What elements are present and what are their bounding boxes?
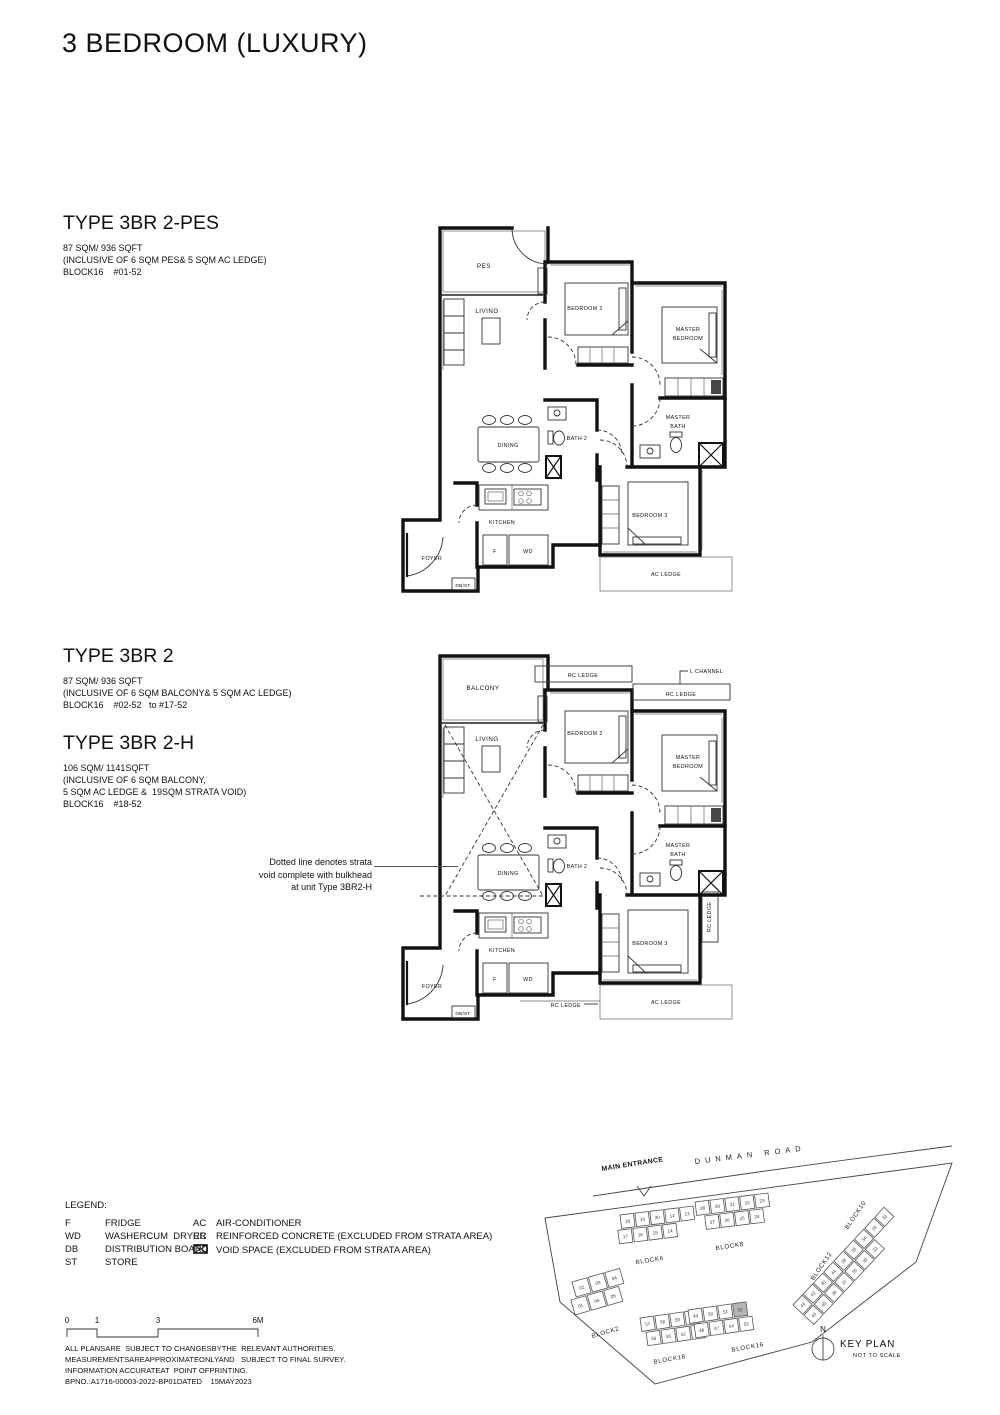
room-label-foyer: FOYER [422, 556, 442, 562]
bed-master [662, 307, 717, 363]
disclaimer-line: BPNO.:A1716-00003-2022-BP01DATED 15MAY20… [65, 1376, 345, 1387]
label-rc-ledge-right: RC LEDGE [707, 902, 713, 932]
block16-label: BLOCK16 [731, 1341, 764, 1354]
pes-inner-line [443, 231, 545, 292]
block10-label: BLOCK10 [844, 1200, 868, 1231]
legend-row-wd: WDWASHERCUM DRYER [65, 1231, 206, 1242]
type-name: TYPE 3BR 2 [63, 645, 393, 668]
label-rc-ledge-top2: RC LEDGE [666, 692, 696, 698]
legend-row-db: DBDISTRIBUTION BOARD [65, 1244, 208, 1255]
scale-label-3: 3 [156, 1316, 161, 1325]
scale-bar: 0 1 3 6M [55, 1310, 325, 1346]
block8-label: BLOCK8 [715, 1241, 744, 1252]
plan2-walls [403, 656, 730, 1019]
disclaimer: ALL PLANSARE SUBJECT TO CHANGESBYTHE REL… [65, 1343, 345, 1387]
legend-row-void: VOID SPACE (EXCLUDED FROM STRATA AREA) [193, 1244, 431, 1256]
void-shaft-bath2 [546, 456, 561, 478]
legend-abbr: F [65, 1218, 105, 1229]
type-name: TYPE 3BR 2-H [63, 732, 393, 755]
label-rc-ledge-top: RC LEDGE [568, 673, 598, 679]
north-label: N [820, 1325, 826, 1334]
legend-desc: AIR-CONDITIONER [216, 1218, 302, 1229]
room-label-balcony: BALCONY [466, 685, 499, 692]
annotation-line: void complete with bulkhead [250, 869, 372, 882]
scale-label-1: 1 [95, 1316, 100, 1325]
kitchen-counter [479, 485, 548, 510]
room-label-foyer: FOYER [422, 984, 442, 990]
legend-title: LEGEND: [65, 1200, 107, 1211]
road-label: DUNMAN ROAD [694, 1143, 806, 1166]
type-area: 87 SQM/ 936 SQFT [63, 242, 393, 254]
room-label-kitchen: KITCHEN [489, 520, 515, 526]
floorplan-type-3br2-pes: PES LIVING BEDROOM 2 MASTER BEDROOM MAST… [395, 210, 755, 608]
room-label-bedroom2: BEDROOM 2 [567, 306, 603, 312]
block18-label: BLOCK18 [653, 1353, 686, 1366]
room-label-wd: WD [523, 977, 533, 983]
type-block-units: BLOCK16 #02-52 to #17-52 [63, 699, 393, 711]
room-label-acledge: AC LEDGE [651, 1000, 681, 1006]
type-inclusive-2: 5 SQM AC LEDGE & 19SQM STRATA VOID) [63, 786, 393, 798]
room-label-dining: DINING [498, 871, 519, 877]
room-label-master-1: MASTER [676, 327, 701, 333]
block6-units: 181920121317161514 [616, 1206, 696, 1244]
legend-desc: STORE [105, 1257, 138, 1268]
legend-abbr: WD [65, 1231, 105, 1242]
disclaimer-line: INFORMATION ACCURATEAT POINT OFPRINTING. [65, 1365, 345, 1376]
room-label-fridge: F [493, 549, 497, 555]
block8-units: 282921222327262524 [695, 1193, 771, 1230]
room-label-bath2: BATH 2 [567, 436, 588, 442]
legend-row-rc: RCREINFORCED CONCRETE (EXCLUDED FROM STR… [193, 1231, 492, 1242]
room-label-bedroom3: BEDROOM 3 [632, 941, 668, 947]
block2-label: BLOCK2 [591, 1325, 620, 1340]
legend-abbr: AC [193, 1218, 216, 1229]
coffee-table [482, 318, 500, 344]
room-label-bedroom3: BEDROOM 3 [632, 513, 668, 519]
annotation-line: Dotted line denotes strata [250, 856, 372, 869]
keyplan-title: KEY PLAN [840, 1339, 895, 1350]
room-label-master-1: MASTER [676, 755, 701, 761]
sofa [444, 299, 464, 365]
legend-desc: FRIDGE [105, 1218, 141, 1229]
type-block-units: BLOCK16 #18-52 [63, 798, 393, 810]
wardrobe-master [665, 806, 723, 824]
room-label-dbst: DB/ST [455, 583, 470, 589]
room-label-pes: PES [477, 263, 491, 270]
plan1-walls [403, 228, 725, 591]
legend-abbr: RC [193, 1231, 216, 1242]
void-space-icon [193, 1244, 216, 1256]
type-3br2-pes-info: TYPE 3BR 2-PES 87 SQM/ 936 SQFT (INCLUSI… [63, 212, 393, 278]
wardrobe-master [665, 378, 723, 396]
legend-abbr: ST [65, 1257, 105, 1268]
north-compass-icon: N [812, 1325, 834, 1360]
void-shaft-master [699, 443, 723, 467]
main-entrance-label: MAIN ENTRANCE [601, 1156, 664, 1173]
room-label-master-2: BEDROOM [673, 336, 703, 342]
type-block-units: BLOCK16 #01-52 [63, 266, 393, 278]
type-area: 106 SQM/ 1141SQFT [63, 762, 393, 774]
strata-void-annotation: Dotted line denotes strata void complete… [250, 856, 372, 894]
wardrobe-bedroom3 [602, 486, 619, 544]
scale-label-6m: 6M [252, 1316, 263, 1325]
block2-units: 020304010605 [566, 1268, 628, 1315]
annotation-leader-line [374, 866, 458, 867]
label-l-channel: L CHANNEL [690, 669, 723, 675]
room-label-master-2: BEDROOM [673, 764, 703, 770]
room-label-bath2: BATH 2 [567, 864, 588, 870]
room-label-masterbath-2: BATH [670, 424, 685, 430]
floorplan-type-3br2: BALCONY LIVING RC LEDGE L CHANNEL RC LED… [393, 648, 760, 1030]
room-label-bedroom2: BEDROOM 2 [567, 731, 603, 737]
sofa [444, 727, 464, 793]
room-label-masterbath-1: MASTER [666, 415, 691, 421]
wardrobe-bedroom2 [578, 347, 628, 363]
plan1-doors [407, 228, 660, 576]
room-label-acledge: AC LEDGE [651, 572, 681, 578]
room-label-living: LIVING [475, 736, 498, 743]
legend-row-ac: ACAIR-CONDITIONER [193, 1218, 302, 1229]
type-inclusive: (INCLUSIVE OF 6 SQM BALCONY, [63, 774, 393, 786]
room-label-wd: WD [523, 549, 533, 555]
wardrobe-bedroom3 [602, 914, 619, 972]
room-label-masterbath-2: BATH [670, 852, 685, 858]
master-bath-fixtures [640, 860, 682, 886]
room-label-fridge: F [493, 977, 497, 983]
keyplan-subtitle: NOT TO SCALE [853, 1353, 901, 1359]
block6-label: BLOCK6 [635, 1255, 664, 1266]
block16-units: 4950515248475453 [688, 1301, 754, 1338]
legend-row-st: STSTORE [65, 1257, 138, 1268]
room-label-kitchen: KITCHEN [489, 948, 515, 954]
bed-master [662, 735, 717, 791]
scale-label-0: 0 [65, 1316, 70, 1325]
page-title: 3 BEDROOM (LUXURY) [62, 28, 368, 59]
master-bath-fixtures [640, 432, 682, 458]
room-label-dining: DINING [498, 443, 519, 449]
room-label-dbst: DB/ST [455, 1011, 470, 1017]
disclaimer-line: ALL PLANSARE SUBJECT TO CHANGESBYTHE REL… [65, 1343, 345, 1354]
bath2-fixtures [548, 835, 566, 873]
bed-bedroom2 [565, 711, 628, 763]
kitchen-counter [479, 913, 548, 938]
type-3br2-h-info: TYPE 3BR 2-H 106 SQM/ 1141SQFT (INCLUSIV… [63, 732, 393, 810]
legend-desc: VOID SPACE (EXCLUDED FROM STRATA AREA) [216, 1245, 431, 1256]
room-label-living: LIVING [475, 308, 498, 315]
label-rc-ledge-bottom: RC LEDGE [551, 1003, 581, 1009]
legend-row-f: FFRIDGE [65, 1218, 141, 1229]
legend-desc: WASHERCUM DRYER [105, 1231, 206, 1242]
wardrobe-bedroom2 [578, 775, 628, 791]
legend-desc: REINFORCED CONCRETE (EXCLUDED FROM STRAT… [216, 1231, 492, 1242]
annotation-line: at unit Type 3BR2-H [250, 881, 372, 894]
type-inclusive: (INCLUSIVE OF 6 SQM PES& 5 SQM AC LEDGE) [63, 254, 393, 266]
room-label-masterbath-1: MASTER [666, 843, 691, 849]
void-shaft-bath2 [546, 884, 561, 906]
type-3br2-info: TYPE 3BR 2 87 SQM/ 936 SQFT (INCLUSIVE O… [63, 645, 393, 711]
scale-bar-line [67, 1329, 258, 1337]
coffee-table [482, 746, 500, 772]
type-inclusive: (INCLUSIVE OF 6 SQM BALCONY& 5 SQM AC LE… [63, 687, 393, 699]
l-channel-pointer [680, 671, 688, 684]
type-name: TYPE 3BR 2-PES [63, 212, 393, 235]
disclaimer-line: MEASUREMENTSAREAPPROXIMATEONLYAND SUBJEC… [65, 1354, 345, 1365]
key-plan: MAIN ENTRANCE DUNMAN ROAD 18192012131716… [535, 1125, 977, 1397]
bath2-fixtures [548, 407, 566, 445]
type-area: 87 SQM/ 936 SQFT [63, 675, 393, 687]
void-shaft-master [699, 871, 723, 895]
legend-abbr: DB [65, 1244, 105, 1255]
